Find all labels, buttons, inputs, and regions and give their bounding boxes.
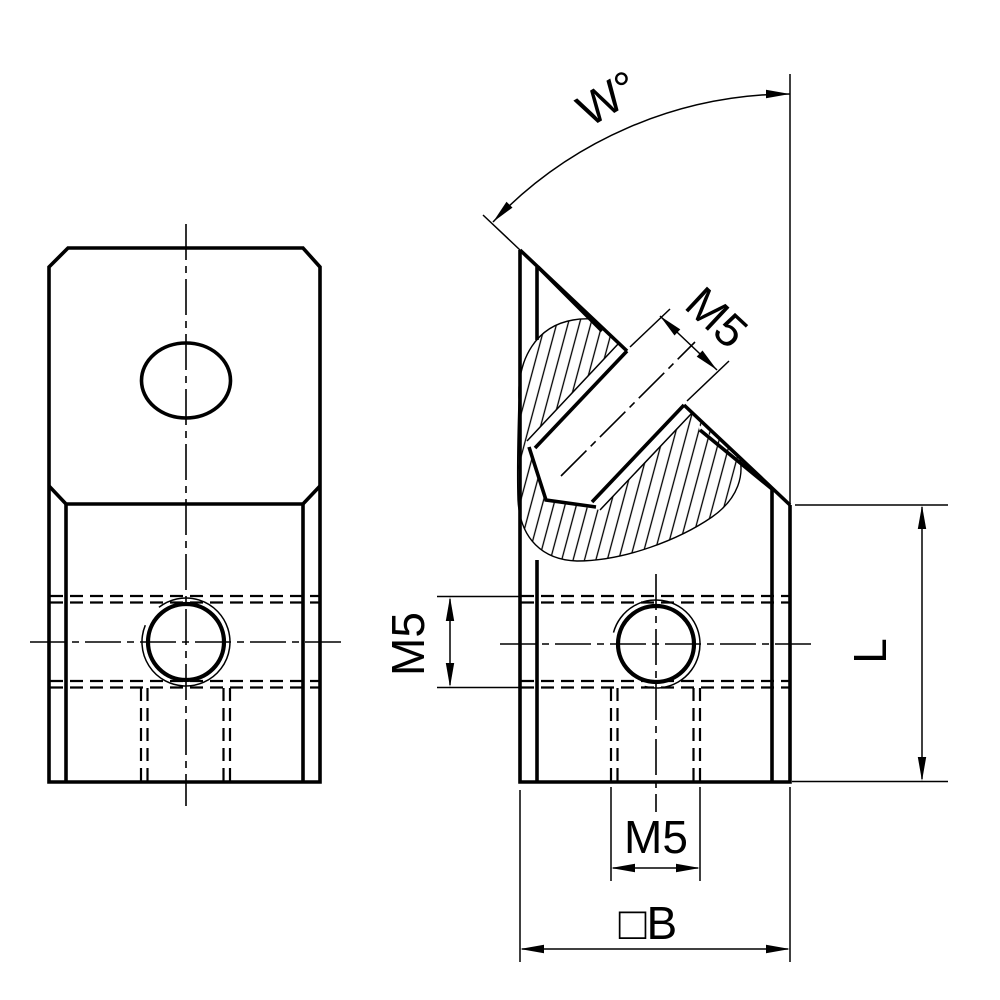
arrowhead (611, 864, 635, 872)
arrowhead (918, 506, 926, 530)
front-outline (49, 248, 320, 782)
bottom-thread-label: M5 (624, 811, 688, 863)
height-label: L (844, 638, 896, 664)
dim-length-l: L (792, 505, 948, 782)
drawing-sheet: W° M5 M5 L M5 (0, 0, 1000, 1000)
arrowhead (918, 757, 926, 781)
front-upper-block-bottom-edge (49, 486, 320, 504)
arrowhead (766, 945, 790, 953)
side-hidden-lines (521, 596, 789, 782)
side-thread-label: M5 (382, 612, 434, 676)
front-view (30, 224, 342, 806)
technical-drawing: W° M5 M5 L M5 (0, 0, 1000, 1000)
dim-thread-side-m5: M5 (382, 597, 521, 688)
front-view-centerlines (30, 224, 342, 806)
arrowhead (446, 663, 454, 687)
arrowhead (676, 864, 700, 872)
arrowhead (446, 597, 454, 621)
arrowhead (520, 945, 544, 953)
side-view (476, 60, 816, 812)
front-hidden-lines (50, 596, 319, 782)
base-width-label: □B (619, 897, 677, 949)
